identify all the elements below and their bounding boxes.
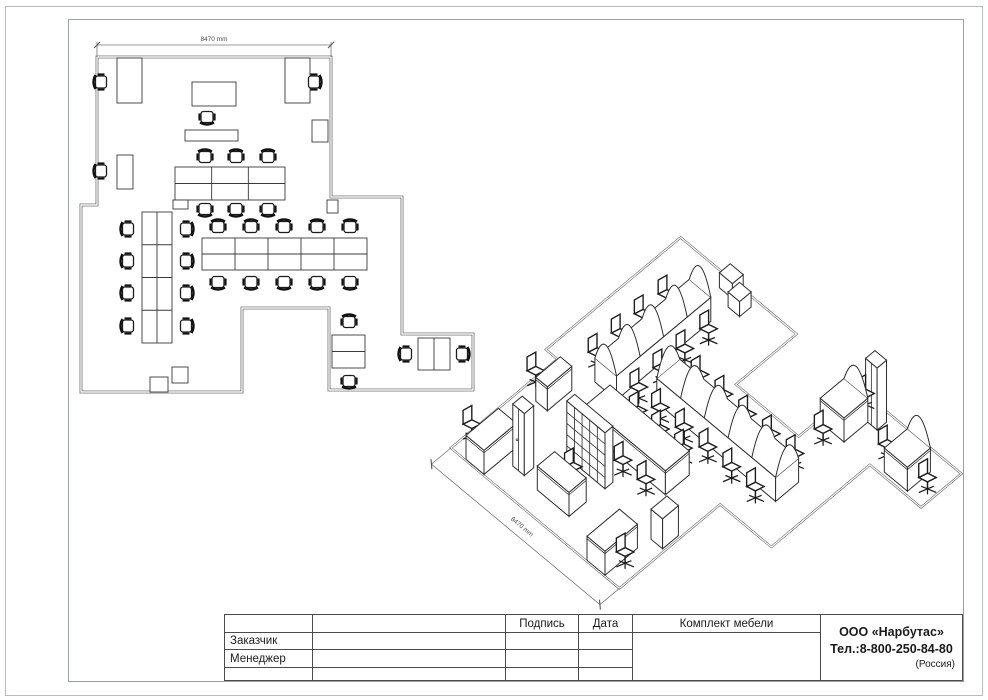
title-block-cell	[579, 668, 633, 681]
desk	[185, 130, 238, 141]
iso-dimension-label: 8470 mm	[509, 516, 534, 539]
office-chair	[309, 277, 324, 290]
desk	[172, 367, 188, 383]
office-chair	[276, 220, 291, 233]
title-block-cell	[313, 668, 506, 681]
office-chair	[228, 204, 243, 217]
office-chair	[260, 204, 275, 217]
office-chair	[121, 318, 134, 333]
plan-dimension-label: 8470 mm	[200, 36, 227, 43]
office-chair	[181, 318, 194, 333]
office-chair	[243, 277, 258, 290]
desk	[285, 58, 310, 103]
office-chair	[260, 150, 275, 163]
office-chair	[341, 315, 356, 328]
title-block-cell	[225, 615, 313, 633]
signature-header: Подпись	[506, 615, 579, 633]
date-header: Дата	[579, 615, 633, 633]
office-chair	[210, 277, 225, 290]
office-chair	[197, 204, 212, 217]
desk	[192, 82, 236, 106]
office-chair	[181, 253, 194, 268]
desk	[202, 238, 367, 270]
desk	[312, 120, 328, 142]
desk	[142, 212, 172, 343]
office-chair	[197, 150, 212, 163]
office-chair	[342, 277, 357, 290]
drawing-canvas: 8470 mm 8470 mm	[0, 0, 988, 700]
desk	[173, 200, 188, 209]
office-chair	[121, 221, 134, 236]
manager-value-cell	[313, 650, 506, 668]
office-chair	[199, 112, 214, 125]
office-chair	[94, 163, 107, 178]
office-chair	[243, 220, 258, 233]
office-chair	[210, 220, 225, 233]
office-chair	[121, 253, 134, 268]
desk	[117, 155, 133, 189]
company-phone: Тел.:8-800-250-84-80	[830, 642, 953, 658]
desk	[332, 335, 365, 368]
furniture-set-body	[633, 633, 821, 681]
desk	[418, 338, 450, 370]
company-country: (Россия)	[916, 659, 962, 670]
office-chair	[457, 346, 470, 361]
office-chair	[228, 150, 243, 163]
desk	[150, 377, 168, 392]
drawing-sheet: 8470 mm 8470 mm Подпись Дата Комплект ме…	[0, 0, 988, 700]
title-block-cell	[225, 668, 313, 681]
customer-signature-cell	[506, 633, 579, 650]
title-block-cell	[506, 668, 579, 681]
office-chair	[121, 285, 134, 300]
office-chair	[309, 220, 324, 233]
office-chair	[399, 346, 412, 361]
desk	[327, 200, 338, 213]
title-block-cell	[313, 615, 506, 633]
floor-plan-3d-isometric	[431, 237, 961, 609]
wardrobe-cabinet	[513, 396, 534, 475]
furniture-set-header: Комплект мебели	[633, 615, 821, 633]
office-chair	[276, 277, 291, 290]
floor-plan-2d	[81, 42, 473, 392]
manager-signature-cell	[506, 650, 579, 668]
company-name: ООО «Нарбутас»	[839, 625, 944, 641]
manager-label: Менеджер	[225, 650, 313, 668]
office-chair	[181, 221, 194, 236]
office-chair	[309, 74, 322, 89]
desk	[117, 58, 142, 103]
office-chair	[342, 220, 357, 233]
office-chair	[181, 285, 194, 300]
customer-value-cell	[313, 633, 506, 650]
office-chair	[94, 74, 107, 89]
company-info: ООО «Нарбутас» Тел.:8-800-250-84-80 (Рос…	[821, 615, 963, 681]
title-block: Подпись Дата Комплект мебели ООО «Нарбут…	[224, 614, 963, 681]
desk	[175, 167, 285, 200]
dimension-line	[94, 42, 334, 57]
customer-date-cell	[579, 633, 633, 650]
customer-label: Заказчик	[225, 633, 313, 650]
manager-date-cell	[579, 650, 633, 668]
office-chair	[341, 376, 356, 389]
